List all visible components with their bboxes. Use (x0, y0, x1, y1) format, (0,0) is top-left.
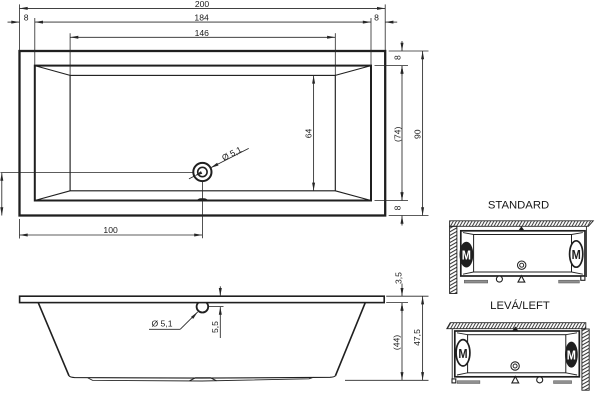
svg-text:100: 100 (103, 225, 118, 235)
svg-text:200: 200 (195, 0, 210, 9)
svg-text:Ø 5,1: Ø 5,1 (151, 318, 172, 328)
svg-text:8: 8 (392, 55, 402, 60)
svg-text:STANDARD: STANDARD (488, 200, 549, 212)
svg-text:8: 8 (24, 13, 29, 23)
svg-text:M: M (462, 248, 471, 263)
svg-text:M: M (567, 348, 576, 363)
svg-text:64: 64 (303, 129, 313, 139)
svg-text:146: 146 (195, 28, 210, 38)
svg-text:3,5: 3,5 (393, 272, 403, 284)
svg-text:(74): (74) (392, 127, 402, 142)
svg-text:M: M (458, 346, 467, 361)
svg-text:LEVÁ/LEFT: LEVÁ/LEFT (490, 299, 550, 312)
svg-text:90: 90 (413, 129, 423, 139)
svg-text:M: M (572, 247, 581, 262)
svg-text:8: 8 (392, 205, 402, 210)
svg-text:(44): (44) (391, 335, 401, 350)
svg-text:184: 184 (194, 13, 209, 23)
svg-text:47,5: 47,5 (412, 329, 422, 346)
svg-text:5,5: 5,5 (210, 321, 220, 333)
svg-text:8: 8 (374, 13, 379, 23)
